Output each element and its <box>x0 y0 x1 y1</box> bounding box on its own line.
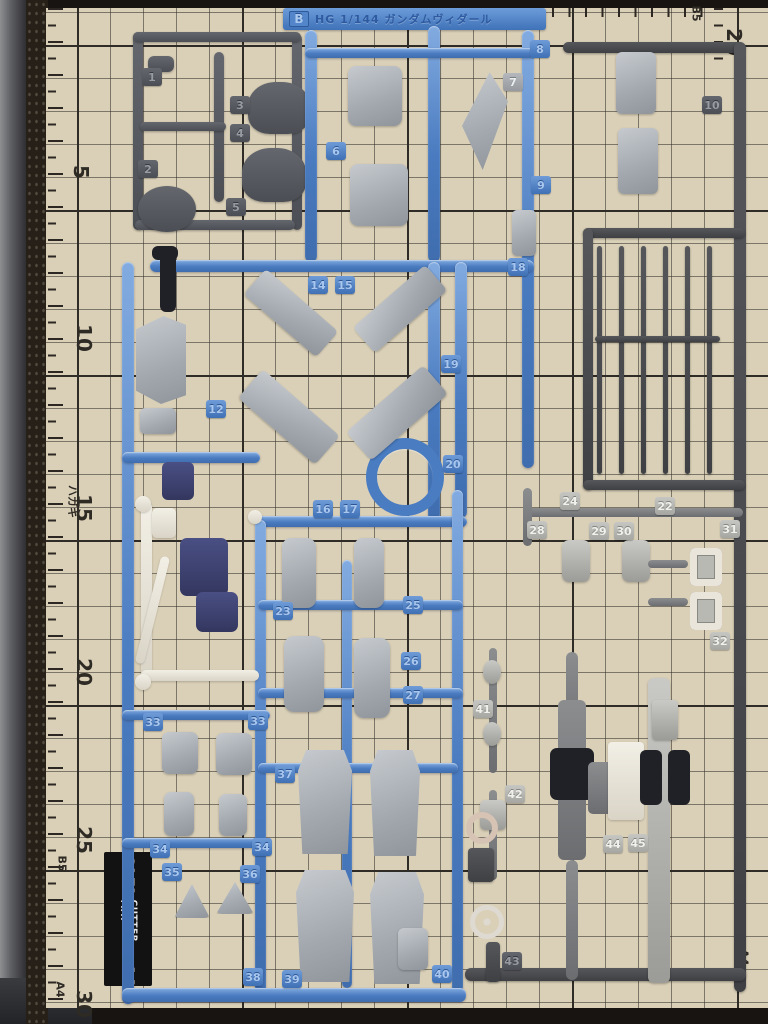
part-tag-16-13: 16 <box>313 500 333 518</box>
blue-runner-rail <box>150 260 534 272</box>
mat-scale-label-ハガキ-6: ハガキ <box>67 485 78 518</box>
part-tag-32-28: 32 <box>710 632 730 650</box>
rifle-receiver-part <box>652 700 678 740</box>
leg-armor-part <box>370 750 420 856</box>
navy-frame-part <box>196 592 238 632</box>
blue-runner-rail <box>452 490 463 992</box>
black-rod-part <box>160 250 176 312</box>
part-tag-31-27: 31 <box>720 520 740 538</box>
part-tag-43-41: 43 <box>502 952 522 970</box>
gray-bracket-part <box>618 128 658 194</box>
thigh-part <box>284 636 324 712</box>
part-tag-36-34: 36 <box>240 865 260 883</box>
foot-part <box>162 732 198 774</box>
blue-runner-rail <box>122 838 270 848</box>
part-tag-37-35: 37 <box>275 765 295 783</box>
part-tag-26-22: 26 <box>401 652 421 670</box>
leg-armor-part <box>298 750 352 854</box>
part-tag-41-39: 41 <box>473 700 493 718</box>
mat-scale-label-20-3: 20 <box>74 658 94 686</box>
thigh-part <box>354 538 384 608</box>
part-tag-6-5: 6 <box>326 142 346 160</box>
part-tag-14-11: 14 <box>308 276 328 294</box>
mat-scale-label-5-0: 5 <box>71 165 91 179</box>
small-torso-part <box>512 210 536 256</box>
part-tag-28-24: 28 <box>527 521 547 539</box>
part-tag-12-10: 12 <box>206 400 226 418</box>
mat-scale-label-A4-8: A4 <box>55 981 66 997</box>
helmet-dome-part <box>242 148 306 202</box>
white-plate-part <box>608 742 644 820</box>
hand-part <box>622 540 650 582</box>
part-tag-7-6: 7 <box>503 73 523 91</box>
charcoal-runner-rail <box>734 42 746 992</box>
ankle-part <box>164 792 194 836</box>
mat-scale-label-B5-9: B5 <box>691 5 702 21</box>
arm-part <box>398 928 428 970</box>
part-tag-5-4: 5 <box>226 198 246 216</box>
part-tag-3-2: 3 <box>230 96 250 114</box>
part-tag-23-19: 23 <box>273 602 293 620</box>
thin-rod-part <box>663 246 668 474</box>
part-tag-38-36: 38 <box>243 968 263 986</box>
runner-letter: B <box>289 11 309 27</box>
chest-armor-part <box>348 66 402 126</box>
part-tag-4-3: 4 <box>230 124 250 142</box>
ankle-part <box>219 794 247 836</box>
silver-runner-rail <box>648 560 688 568</box>
part-tag-27-23: 27 <box>403 686 423 704</box>
rifle-grip-part <box>640 750 662 805</box>
part-tag-9-8: 9 <box>531 176 551 194</box>
cone-part <box>486 942 500 982</box>
thin-rod-part <box>685 246 690 474</box>
hand-part <box>562 540 590 582</box>
blue-runner-rail <box>122 262 134 1004</box>
dark-runner-rail <box>140 122 226 131</box>
thigh-part <box>282 538 316 608</box>
thin-rod-part <box>619 246 624 474</box>
blue-runner-rail <box>122 988 466 1002</box>
pearl-ball-joint <box>248 510 262 524</box>
blue-runner-rail <box>255 516 467 527</box>
joint-ball-part <box>483 722 501 746</box>
pearl-runner-rail <box>141 670 259 681</box>
mat-scale-label-B5-7: B5 <box>57 855 68 871</box>
charcoal-runner-rail <box>583 228 745 238</box>
photo-gunpla-runners-on-cutting-mat: 51015202530ハガキB5A4B520A4 OLFA CUTTER MAT… <box>0 0 768 1024</box>
part-tag-1-0: 1 <box>142 68 162 86</box>
pearl-ball-joint <box>135 496 151 512</box>
round-base-part <box>138 186 196 232</box>
mat-scale-label-10-1: 10 <box>74 324 94 352</box>
part-tag-33-30: 33 <box>248 712 268 730</box>
part-tag-25-21: 25 <box>403 596 423 614</box>
navy-frame-part <box>180 538 228 596</box>
navy-head-part <box>162 462 194 500</box>
pearl-part <box>152 508 176 538</box>
part-tag-20-17: 20 <box>443 455 463 473</box>
silver-runner-rail <box>523 508 743 517</box>
scope-ring-part <box>470 905 504 939</box>
helmet-dome-part <box>248 82 310 134</box>
part-tag-34-32: 34 <box>252 838 272 856</box>
part-tag-40-38: 40 <box>432 965 452 983</box>
charcoal-runner-rail <box>563 42 745 53</box>
runner-id-tag: B HG 1/144 ガンダムヴィダール <box>283 8 546 30</box>
scope-ring-part <box>466 812 498 844</box>
part-tag-10-9: 10 <box>702 96 722 114</box>
part-tag-34-31: 34 <box>150 840 170 858</box>
part-tag-18-15: 18 <box>508 258 528 276</box>
c-clip-part <box>690 592 722 630</box>
blue-runner-rail <box>255 520 266 992</box>
thigh-part <box>354 638 390 718</box>
rifle-stock-rod-part <box>566 860 578 980</box>
part-tag-2-1: 2 <box>138 160 158 178</box>
part-tag-24-20: 24 <box>560 492 580 510</box>
blue-runner-rail <box>455 262 467 518</box>
charcoal-runner-rail <box>583 228 593 490</box>
silver-chest-part <box>136 316 186 404</box>
part-tag-29-25: 29 <box>589 522 609 540</box>
blue-runner-rail <box>428 26 440 262</box>
part-tag-44-42: 44 <box>603 835 623 853</box>
silver-small-part <box>140 408 176 434</box>
foot-part <box>216 733 252 775</box>
mat-speckled-border <box>26 0 48 1024</box>
part-tag-33-29: 33 <box>143 713 163 731</box>
joint-ball-part <box>483 660 501 684</box>
mat-scale-label-30-5: 30 <box>74 990 94 1018</box>
part-tag-30-26: 30 <box>614 522 634 540</box>
leg-armor-part <box>296 870 354 982</box>
charcoal-runner-rail <box>583 480 745 490</box>
part-tag-8-7: 8 <box>530 40 550 58</box>
thin-rod-part <box>597 246 602 474</box>
rifle-grip-part <box>668 750 690 805</box>
gray-bracket-part <box>616 52 656 114</box>
part-tag-45-43: 45 <box>628 834 648 852</box>
blue-runner-rail <box>305 30 317 262</box>
blue-runner-rail <box>305 48 534 58</box>
part-tag-22-18: 22 <box>655 497 675 515</box>
sight-block-part <box>468 848 494 882</box>
runner-kit-title: HG 1/144 ガンダムヴィダール <box>315 11 493 27</box>
part-tag-35-33: 35 <box>162 863 182 881</box>
part-tag-42-40: 42 <box>505 785 525 803</box>
part-tag-19-16: 19 <box>441 355 461 373</box>
silver-runner-rail <box>648 598 688 606</box>
c-clip-part <box>690 548 722 586</box>
table-edge <box>0 0 26 1024</box>
chest-armor-part <box>350 164 408 226</box>
part-tag-15-12: 15 <box>335 276 355 294</box>
rod-connector <box>595 336 720 342</box>
mat-scale-label-25-4: 25 <box>74 826 94 854</box>
dark-runner-rail <box>133 32 301 42</box>
thin-rod-part <box>641 246 646 474</box>
part-tag-39-37: 39 <box>282 970 302 988</box>
blue-runner-rail <box>122 452 260 463</box>
pearl-ball-joint <box>135 674 151 690</box>
thin-rod-part <box>707 246 712 474</box>
part-tag-17-14: 17 <box>340 500 360 518</box>
